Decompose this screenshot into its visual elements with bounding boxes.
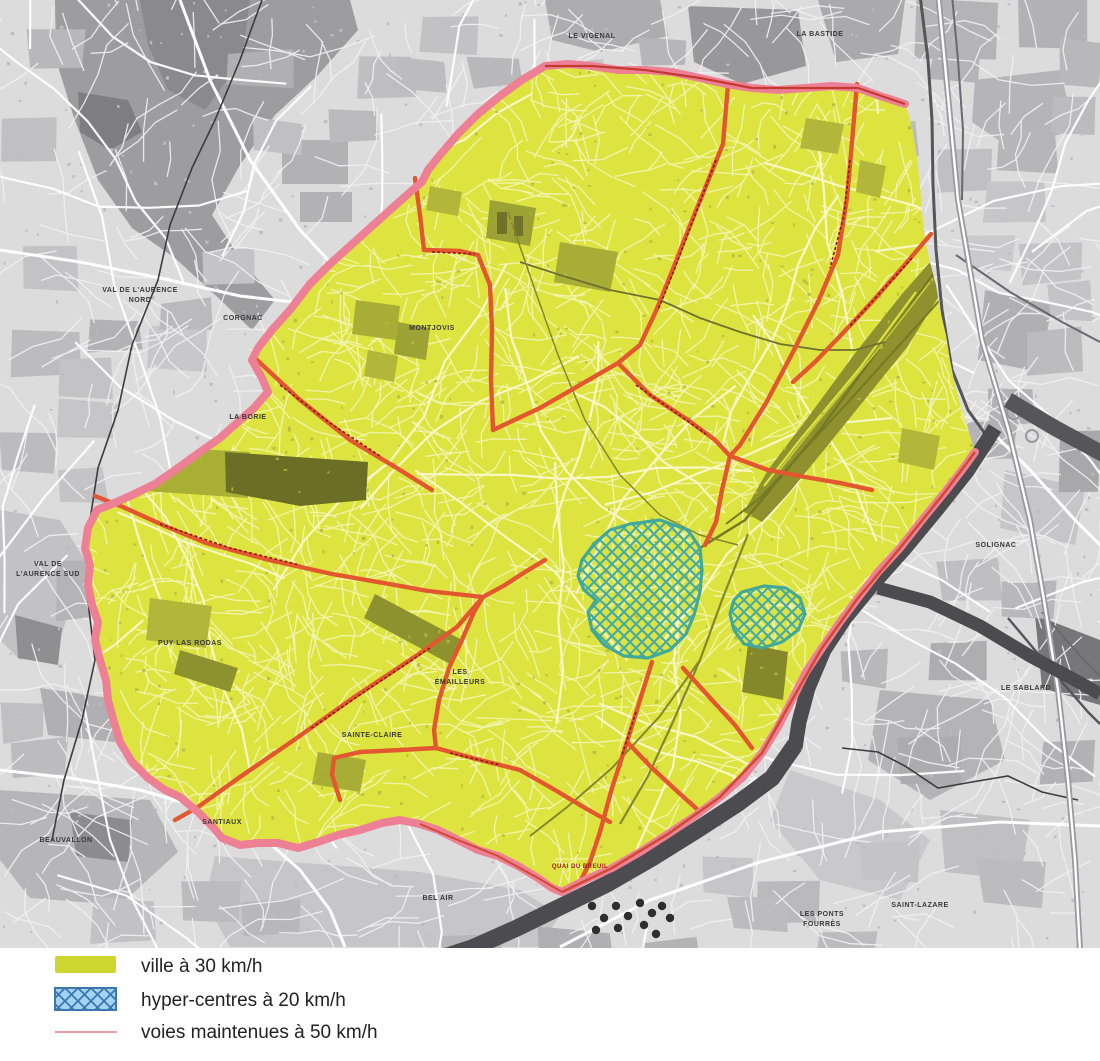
svg-text:voies maintenues à 50 km/h: voies maintenues à 50 km/h: [141, 1022, 378, 1043]
svg-text:LE VIGENAL: LE VIGENAL: [568, 33, 615, 40]
svg-text:SAINT-LAZARE: SAINT-LAZARE: [891, 902, 948, 909]
svg-text:LA BASTIDE: LA BASTIDE: [797, 31, 844, 38]
svg-text:SANTIAUX: SANTIAUX: [202, 819, 242, 826]
svg-text:VAL DE: VAL DE: [34, 561, 62, 568]
svg-text:BEAUVALLON: BEAUVALLON: [39, 837, 92, 844]
svg-text:VAL DE L'AURENCE: VAL DE L'AURENCE: [102, 287, 178, 294]
svg-text:hyper-centres à 20 km/h: hyper-centres à 20 km/h: [141, 990, 346, 1011]
svg-text:BEL AIR: BEL AIR: [422, 895, 453, 902]
svg-text:SOLIGNAC: SOLIGNAC: [976, 542, 1017, 549]
svg-text:FOURRÈS: FOURRÈS: [803, 919, 841, 928]
svg-text:QUAI DU BREUIL: QUAI DU BREUIL: [552, 864, 608, 870]
svg-text:ÉMAILLEURS: ÉMAILLEURS: [435, 677, 486, 686]
svg-text:L'AURENCE SUD: L'AURENCE SUD: [16, 571, 80, 578]
svg-text:LA BORIE: LA BORIE: [229, 414, 266, 421]
svg-text:CORGNAC: CORGNAC: [223, 315, 263, 322]
svg-text:NORD: NORD: [129, 297, 152, 304]
svg-text:LES PONTS: LES PONTS: [800, 911, 844, 918]
svg-text:LE SABLARD: LE SABLARD: [1001, 685, 1051, 692]
svg-text:LES: LES: [452, 669, 467, 676]
svg-text:PUY LAS RODAS: PUY LAS RODAS: [158, 640, 222, 647]
svg-text:MONTJOVIS: MONTJOVIS: [409, 325, 455, 332]
svg-text:ville à 30 km/h: ville à 30 km/h: [141, 956, 262, 977]
svg-text:SAINTE-CLAIRE: SAINTE-CLAIRE: [342, 732, 403, 739]
